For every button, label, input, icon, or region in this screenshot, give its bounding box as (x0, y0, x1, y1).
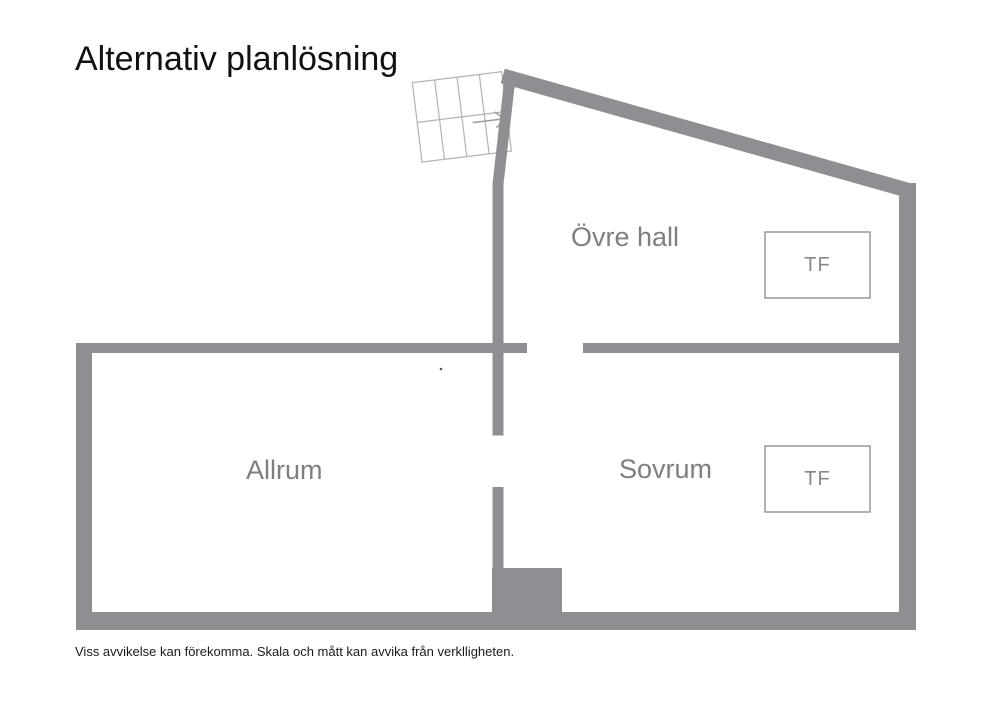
floor-plan-drawing (0, 0, 992, 701)
disclaimer-text: Viss avvikelse kan förekomma. Skala och … (75, 644, 514, 659)
tf-label-upper-hall: TF (765, 232, 870, 298)
room-label-sovrum: Sovrum (619, 454, 712, 485)
walls (76, 78, 916, 629)
wall-center-upper (498, 78, 510, 430)
tf-label-bedroom: TF (765, 446, 870, 512)
room-label-ovre-hall: Övre hall (571, 222, 679, 253)
wall-top-slanted (510, 78, 907, 190)
artifact-dot (440, 368, 443, 371)
room-label-allrum: Allrum (246, 455, 323, 486)
floor-plan-page: Alternativ planlösning Övre hall Allrum … (0, 0, 992, 701)
wall-block-chimney (492, 568, 562, 614)
page-title: Alternativ planlösning (75, 40, 398, 79)
